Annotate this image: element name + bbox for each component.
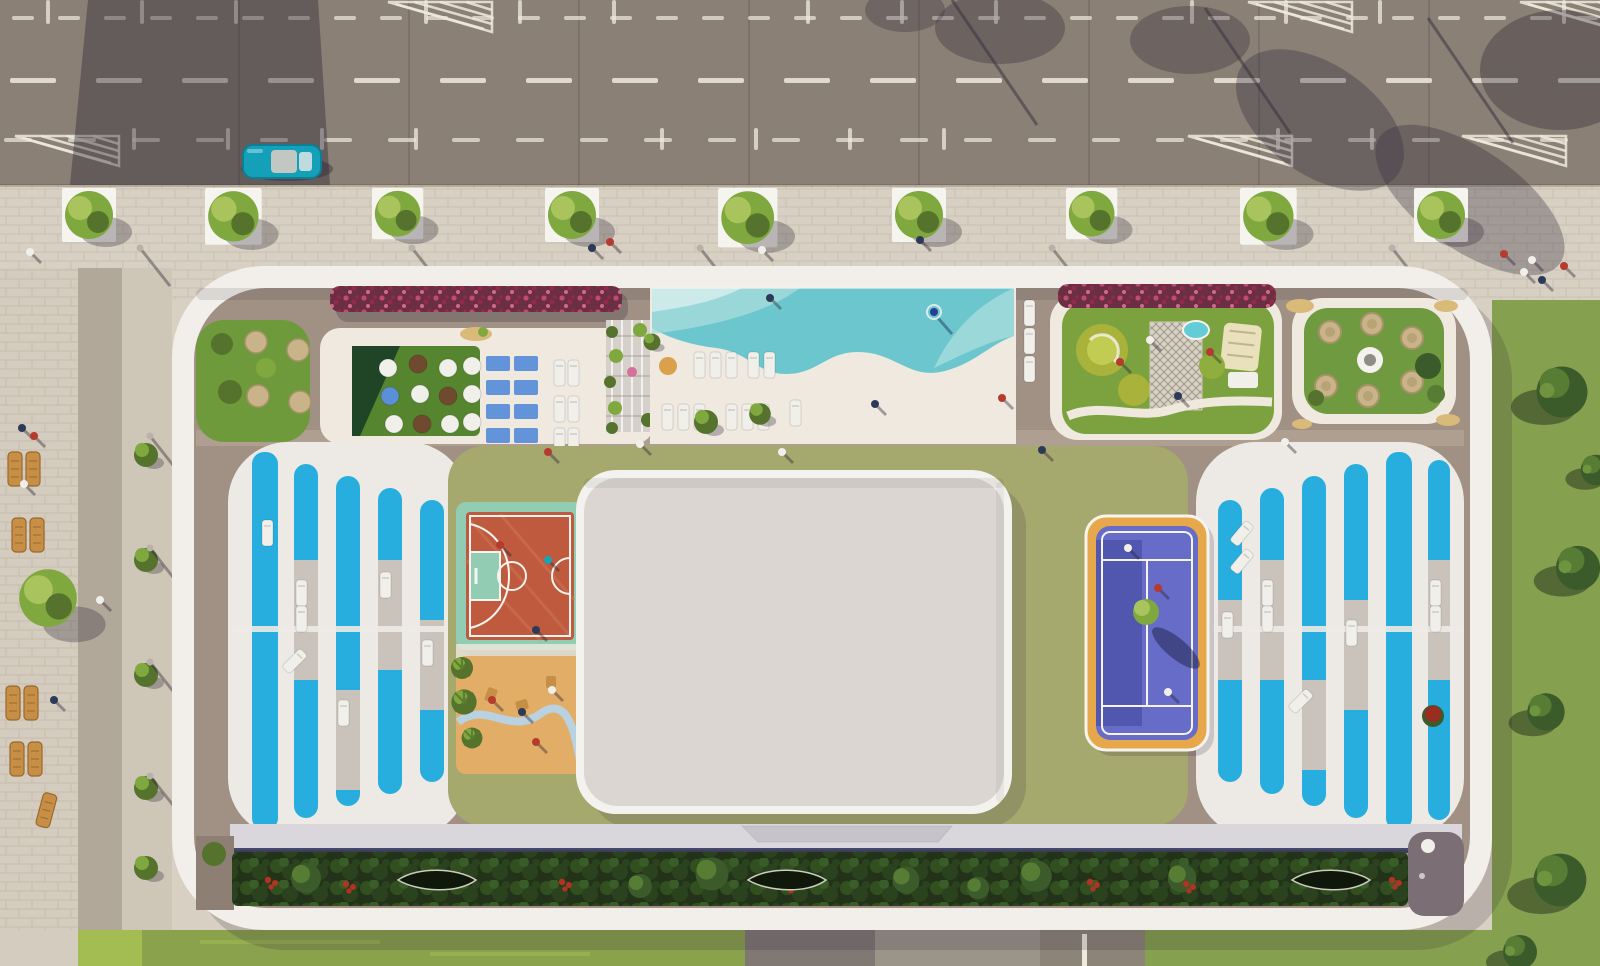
palm-tree (462, 728, 483, 749)
sun-lounger (678, 404, 689, 430)
sun-lounger (422, 640, 433, 666)
top-dash (748, 16, 770, 20)
top-dash (58, 16, 80, 20)
lane-dash (698, 78, 744, 83)
balcony-pool (252, 452, 278, 830)
flower-hedge-east (1058, 284, 1276, 308)
hedge-bush (1020, 860, 1052, 892)
hedge-bush (967, 877, 990, 900)
top-dash (702, 16, 724, 20)
toddler-playground (451, 644, 584, 774)
top-dash (794, 16, 816, 20)
sun-lounger (1024, 300, 1035, 326)
sun-lounger (710, 352, 721, 378)
pool-mat (486, 428, 510, 443)
pool-mat (514, 356, 538, 371)
terrace-table (411, 385, 429, 403)
parking-dash (324, 138, 352, 142)
hedge-bush (893, 867, 920, 894)
parking-separator (612, 0, 616, 24)
top-dash (380, 16, 402, 20)
central-platform (448, 446, 1214, 828)
wood-lounger (10, 742, 24, 776)
south-band (196, 824, 1464, 916)
parking-dash (452, 138, 480, 142)
bottom-lawn-bright (78, 930, 142, 966)
wood-lounger (8, 452, 22, 486)
flower-hedge-west (330, 286, 622, 312)
gravel-strip (122, 268, 172, 930)
palm-tree (451, 657, 473, 679)
car-windshield (271, 150, 297, 173)
wicker-seat (1319, 321, 1341, 343)
hedge-bush (628, 874, 652, 898)
lane-dash (440, 78, 486, 83)
parking-dash (644, 138, 672, 142)
sun-lounger (338, 700, 349, 726)
curb (0, 184, 1600, 187)
parking-tick (414, 128, 418, 150)
parking-tick (942, 128, 946, 150)
top-dash (610, 16, 632, 20)
pool-mat (514, 380, 538, 395)
car (241, 145, 333, 181)
parking-dash (1156, 138, 1184, 142)
amenities-top (196, 284, 1460, 454)
wave-pool (644, 286, 1035, 444)
terrace-table (379, 359, 397, 377)
top-dash (1254, 16, 1276, 20)
pool-mat (486, 380, 510, 395)
terrace-table (381, 387, 399, 405)
sun-lounger (764, 352, 775, 378)
lane-dash (956, 78, 1002, 83)
road-seam (408, 0, 410, 185)
sun-lounger (1430, 606, 1441, 632)
pool-mat (514, 404, 538, 419)
sun-lounger (1346, 620, 1357, 646)
top-dash (334, 16, 356, 20)
sun-lounger (296, 606, 307, 632)
terrace-seam (228, 626, 468, 632)
parasol (245, 331, 267, 353)
top-dash (840, 16, 862, 20)
sun-lounger (694, 352, 705, 378)
lane-dash (870, 78, 916, 83)
kiddie-pool (1183, 321, 1209, 339)
pool-mat (486, 404, 510, 419)
lane-dash (1128, 78, 1174, 83)
top-dash (1116, 16, 1138, 20)
beach-umbrella (659, 357, 677, 375)
aerial-render (0, 0, 1600, 966)
parking-tick (754, 128, 758, 150)
road-seam (1088, 0, 1090, 185)
wicker-seat (1361, 313, 1383, 335)
top-dash (518, 16, 540, 20)
lane-dash (526, 78, 572, 83)
padel-court (1086, 516, 1214, 756)
sun-lounger (554, 396, 565, 422)
pink-bloom (627, 367, 637, 377)
pool-mat (486, 356, 510, 371)
bottom-pavers-left (0, 930, 78, 966)
hedge-bush (696, 858, 729, 891)
corner-tree (202, 842, 226, 866)
sun-lounger (262, 520, 273, 546)
pool-mat (514, 428, 538, 443)
sun-lounger (726, 352, 737, 378)
sun-lounger (726, 404, 737, 430)
parking-tick (848, 128, 852, 150)
parking-dash (1092, 138, 1120, 142)
top-dash (1484, 16, 1506, 20)
terrace-fins-east (1196, 442, 1464, 838)
tower-roof (576, 470, 1026, 828)
sun-lounger (568, 396, 579, 422)
sun-lounger (1262, 606, 1273, 632)
hedge-bush (291, 863, 321, 893)
roof-light (1421, 839, 1435, 853)
parking-dash (708, 138, 736, 142)
lane-dash (612, 78, 658, 83)
parking-separator (806, 0, 810, 24)
wood-lounger (26, 452, 40, 486)
parking-separator (46, 0, 50, 24)
wood-lounger (24, 686, 38, 720)
wood-lounger (6, 686, 20, 720)
lane-dash (10, 78, 56, 83)
parking-dash (964, 138, 992, 142)
red-shrub (1425, 706, 1441, 722)
terrace-table (463, 357, 481, 375)
palm-tree (451, 689, 476, 714)
southeast-terrace (1408, 832, 1464, 916)
parking-dash (580, 138, 608, 142)
play-mound (1199, 353, 1225, 379)
garden-lounge (1286, 298, 1460, 429)
kids-playground (1050, 284, 1282, 440)
top-dash (1392, 16, 1414, 20)
terrace-table (441, 415, 459, 433)
terrace-table (409, 355, 427, 373)
parking-separator (518, 0, 522, 24)
parking-separator (1378, 0, 1382, 24)
sun-lounger (1024, 328, 1035, 354)
lane-dash (1042, 78, 1088, 83)
lane-dash (1386, 78, 1432, 83)
wood-lounger (28, 742, 42, 776)
top-dash (564, 16, 586, 20)
terrace-table (385, 415, 403, 433)
sun-lounger (296, 580, 307, 606)
wicker-seat (1357, 385, 1379, 407)
sun-lounger (1430, 580, 1441, 606)
lane-dash (784, 78, 830, 83)
terrace-table (463, 385, 481, 403)
parking-tick (660, 128, 664, 150)
terrace-table (439, 387, 457, 405)
parking-dash (1028, 138, 1056, 142)
sun-lounger (380, 572, 391, 598)
wood-lounger (30, 518, 44, 552)
sun-lounger (1262, 580, 1273, 606)
lane-dash (354, 78, 400, 83)
roof-handle (742, 826, 952, 842)
parking-dash (388, 138, 416, 142)
parking-dash (900, 138, 928, 142)
basketball-court (456, 502, 590, 656)
sun-lounger (554, 360, 565, 386)
road-seam (748, 0, 750, 185)
sun-lounger (1222, 612, 1233, 638)
parking-dash (772, 138, 800, 142)
sun-lounger (568, 360, 579, 386)
sun-lounger (1024, 356, 1035, 382)
top-dash (12, 16, 34, 20)
top-dash (656, 16, 678, 20)
terrace-table (463, 413, 481, 431)
wicker-seat (1401, 327, 1423, 349)
sun-lounger (790, 400, 801, 426)
parking-dash (516, 138, 544, 142)
play-canopy (1220, 322, 1263, 372)
sun-lounger (748, 352, 759, 378)
top-dash (1438, 16, 1460, 20)
terrace-table (439, 359, 457, 377)
terrace-table (413, 415, 431, 433)
top-dash (1070, 16, 1092, 20)
wood-lounger (12, 518, 26, 552)
road-seam (578, 0, 580, 185)
sun-lounger (662, 404, 673, 430)
corner-garden (196, 320, 311, 442)
